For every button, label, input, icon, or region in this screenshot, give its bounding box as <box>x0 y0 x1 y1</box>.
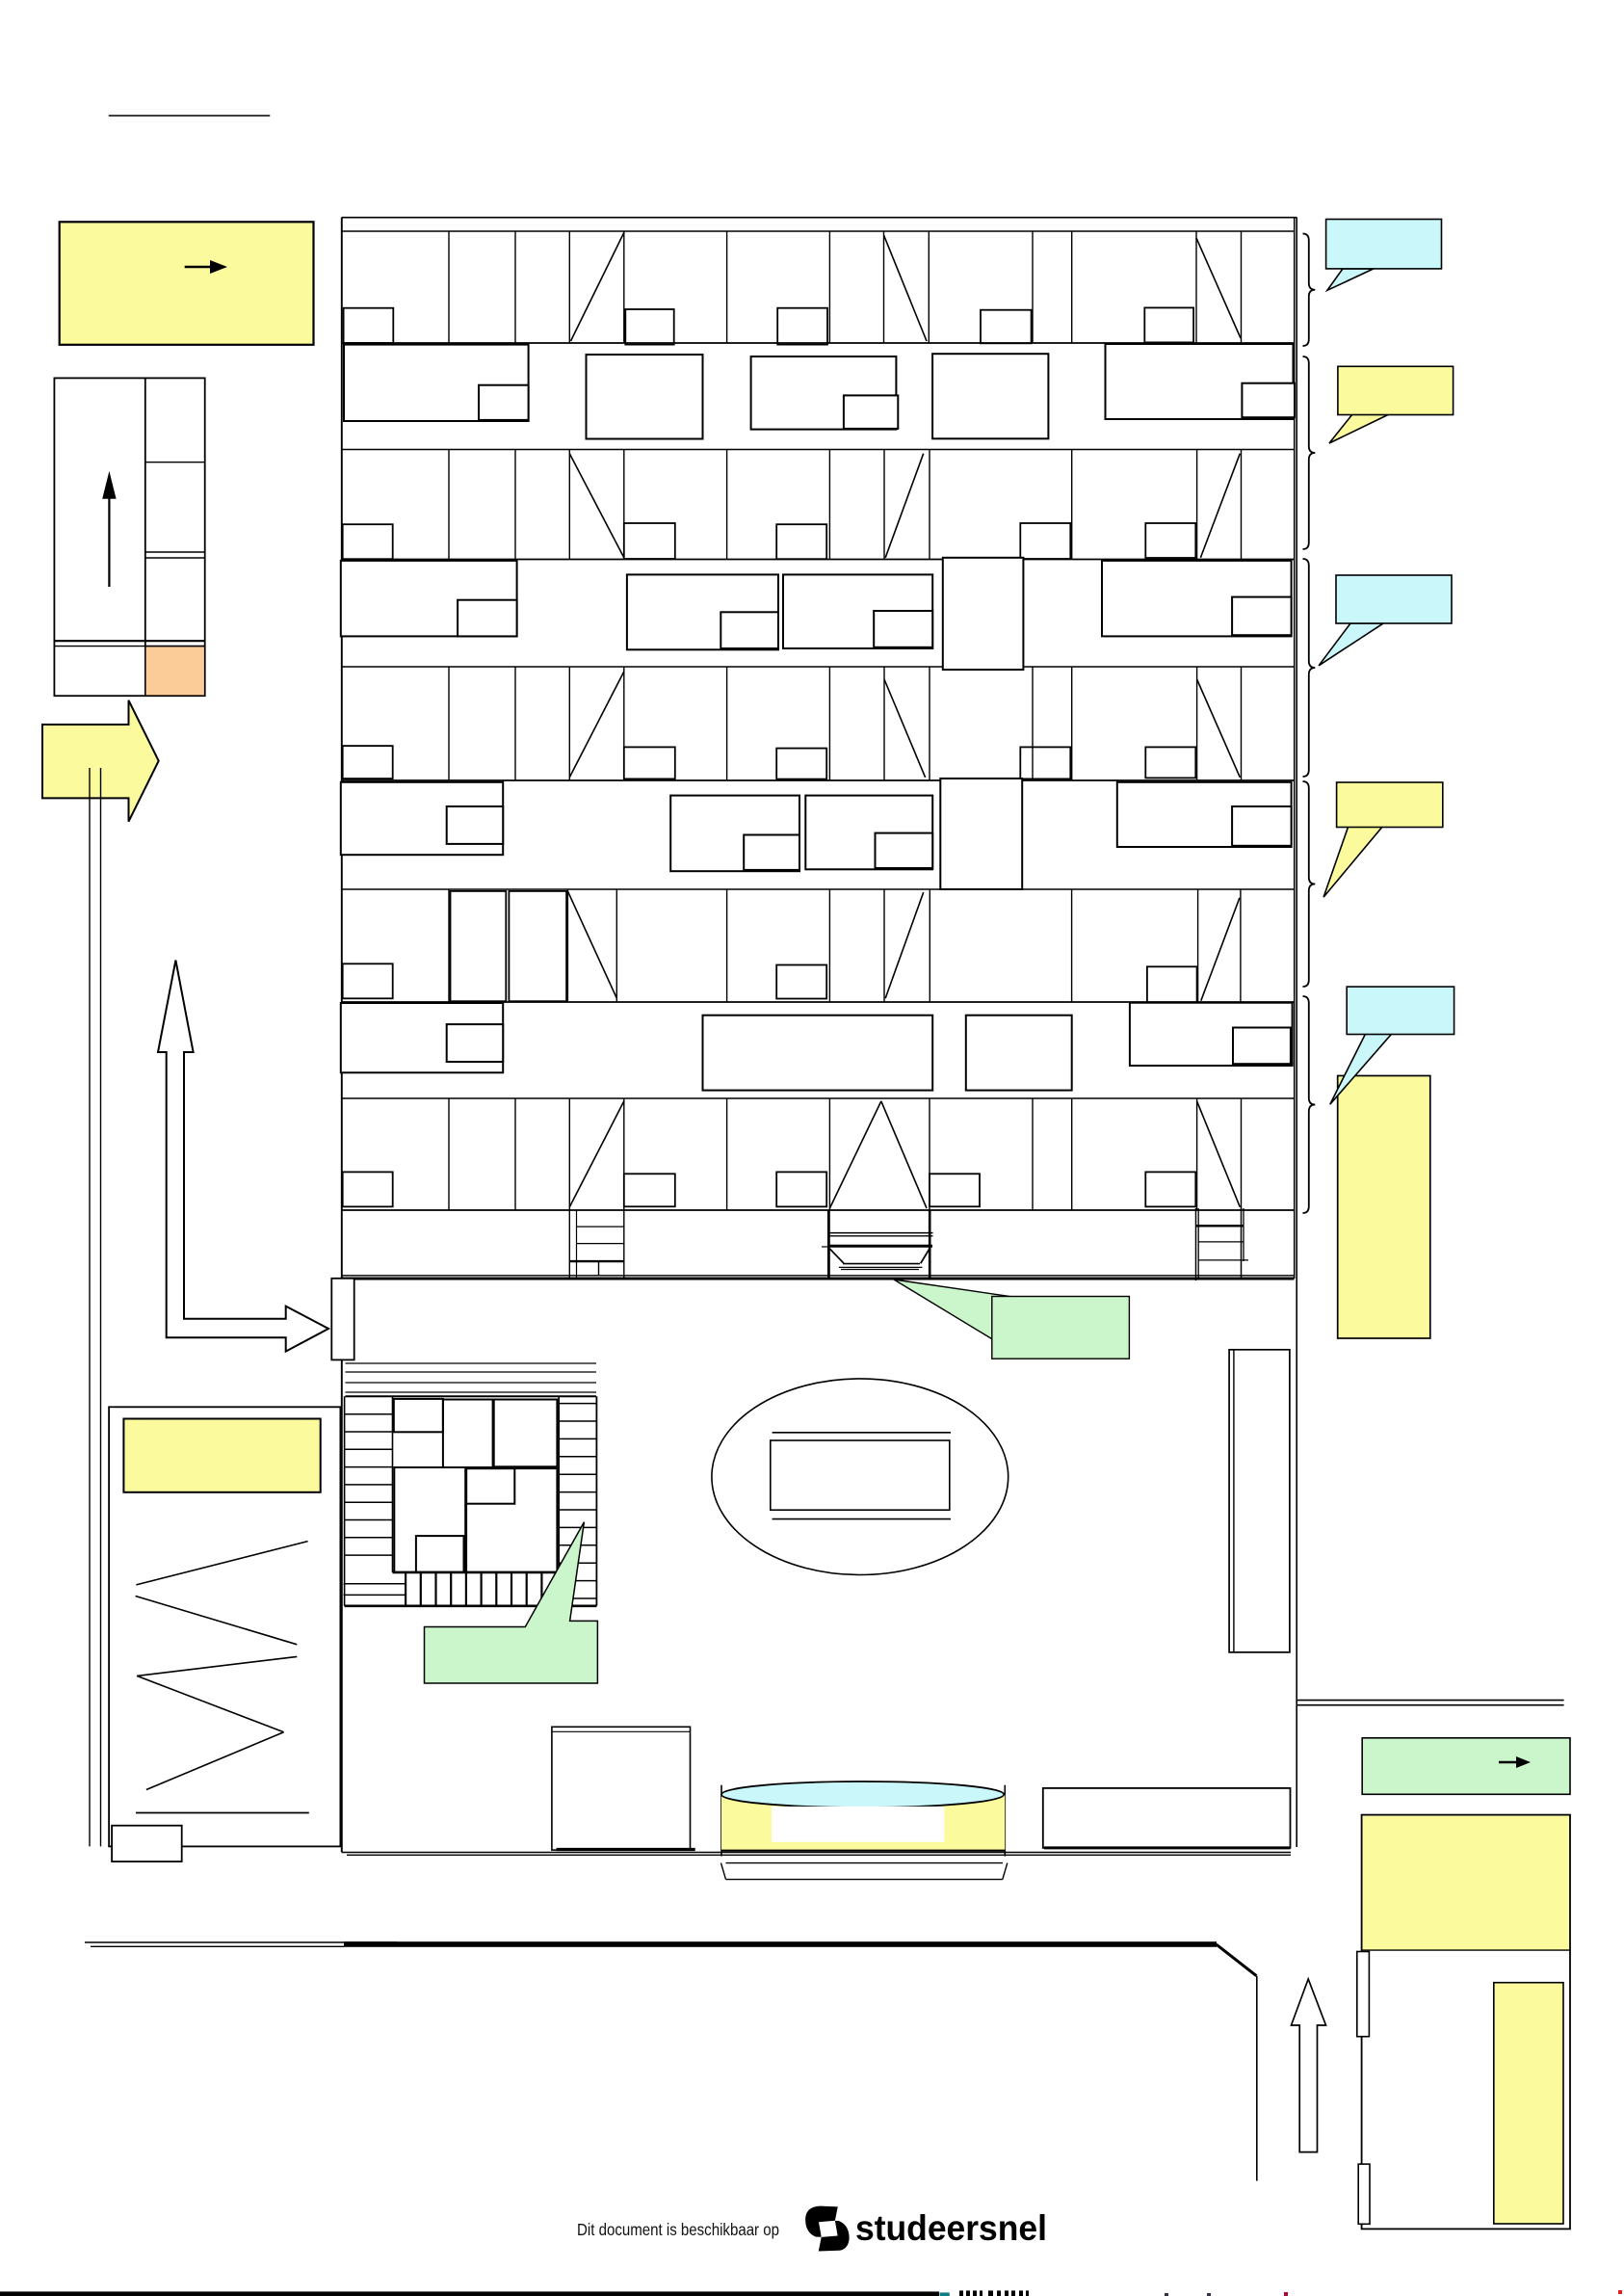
svg-text:Dit document is beschikbaar op: Dit document is beschikbaar op <box>577 2220 779 2239</box>
svg-text:studeersnel: studeersnel <box>855 2208 1047 2248</box>
